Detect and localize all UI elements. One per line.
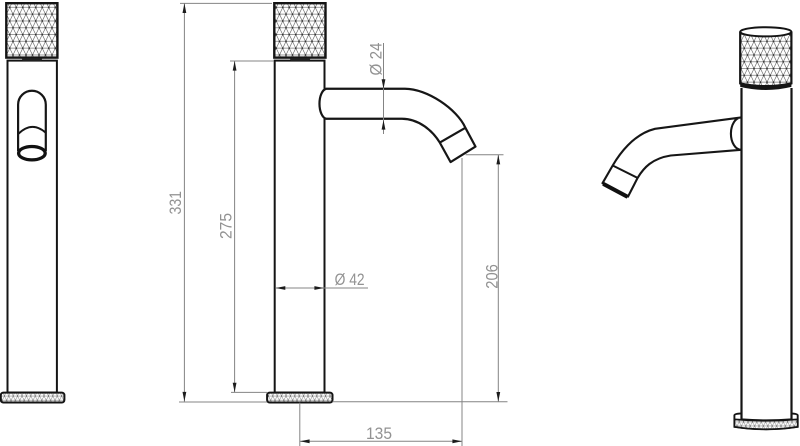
svg-text:275: 275 (217, 213, 236, 239)
svg-text:135: 135 (366, 424, 392, 443)
svg-text:Ø 24: Ø 24 (367, 43, 386, 76)
svg-text:331: 331 (166, 191, 185, 215)
svg-text:Ø 42: Ø 42 (335, 270, 365, 289)
svg-text:206: 206 (483, 264, 502, 289)
